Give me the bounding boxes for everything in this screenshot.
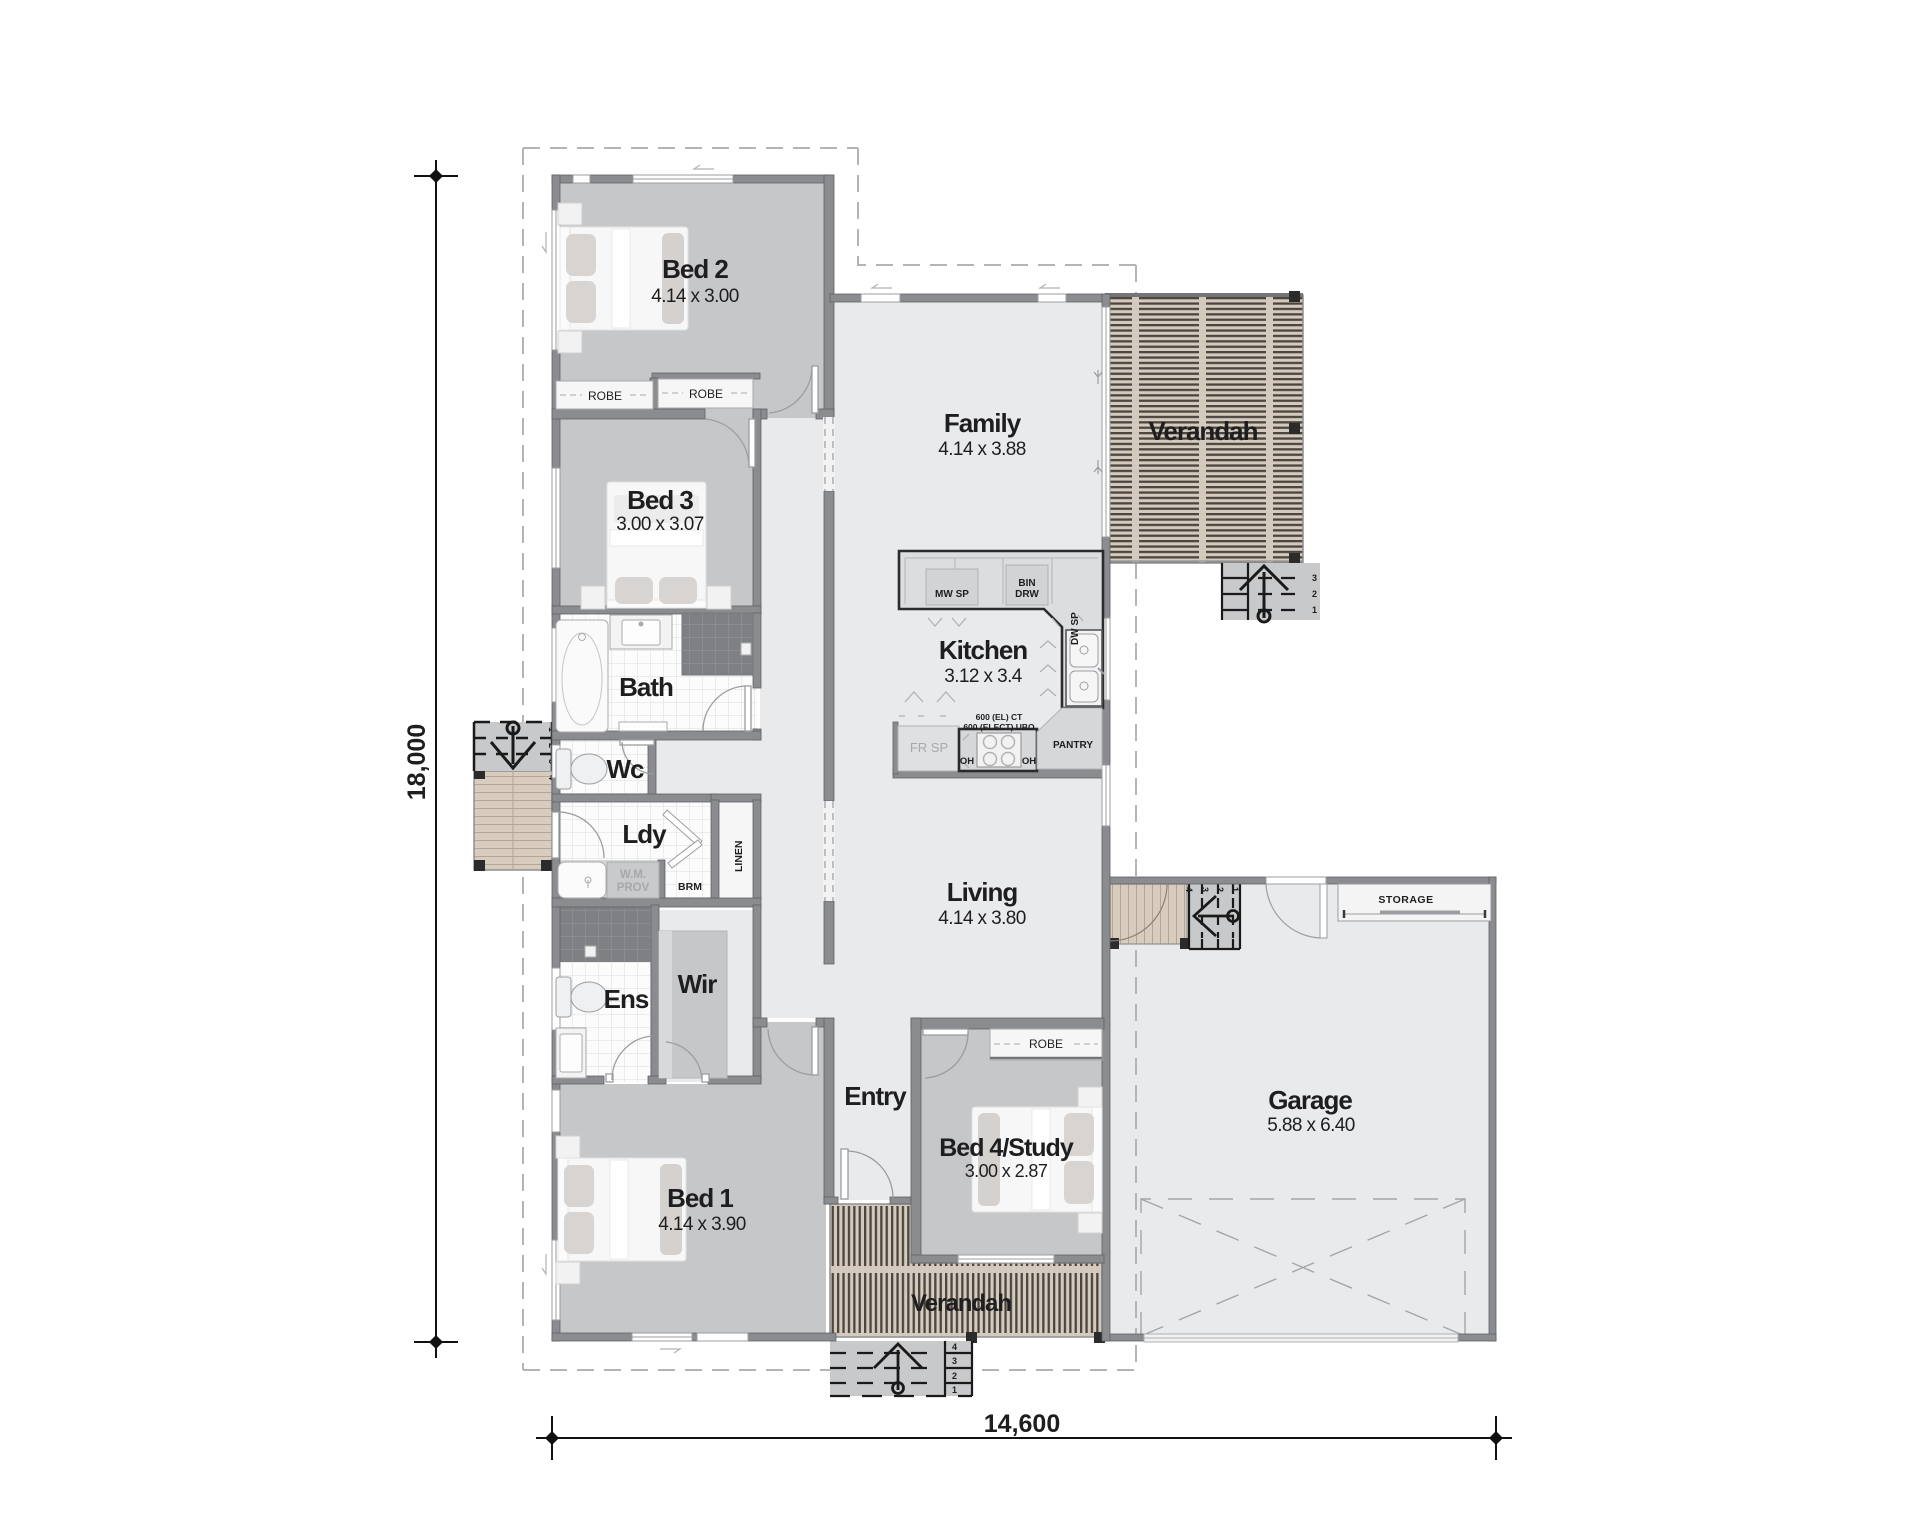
svg-text:Kitchen: Kitchen — [939, 635, 1027, 665]
svg-text:Ens: Ens — [604, 984, 649, 1014]
svg-text:Verandah: Verandah — [1148, 416, 1257, 446]
svg-text:ROBE: ROBE — [689, 387, 723, 401]
svg-text:Verandah: Verandah — [911, 1290, 1011, 1317]
svg-text:FR SP: FR SP — [910, 740, 948, 755]
svg-text:3: 3 — [1312, 573, 1317, 583]
svg-text:ROBE: ROBE — [588, 389, 622, 403]
svg-text:Bed 2: Bed 2 — [662, 254, 728, 284]
svg-text:DW SP: DW SP — [1070, 612, 1081, 645]
svg-text:LINEN: LINEN — [733, 841, 745, 873]
svg-text:14,600: 14,600 — [984, 1410, 1060, 1438]
svg-text:Bed 1: Bed 1 — [667, 1183, 733, 1213]
svg-text:OH: OH — [1022, 756, 1036, 767]
svg-text:BIN: BIN — [1018, 578, 1035, 589]
svg-text:4.14 x 3.88: 4.14 x 3.88 — [938, 439, 1025, 460]
svg-text:Bed 4/Study: Bed 4/Study — [939, 1134, 1074, 1162]
svg-text:OH: OH — [960, 756, 974, 767]
svg-text:2: 2 — [1312, 589, 1317, 599]
svg-text:Bath: Bath — [619, 672, 673, 702]
svg-text:3: 3 — [952, 1356, 957, 1366]
svg-text:Living: Living — [947, 877, 1018, 907]
svg-text:4.14 x 3.80: 4.14 x 3.80 — [938, 908, 1025, 929]
svg-text:Bed 3: Bed 3 — [627, 485, 693, 515]
svg-text:1: 1 — [952, 1385, 957, 1395]
svg-text:5.88 x 6.40: 5.88 x 6.40 — [1267, 1115, 1354, 1136]
svg-text:Entry: Entry — [844, 1081, 907, 1111]
svg-text:4: 4 — [952, 1342, 957, 1352]
svg-text:1: 1 — [1230, 887, 1240, 892]
svg-text:3: 3 — [1200, 887, 1210, 892]
svg-text:ROBE: ROBE — [1029, 1037, 1063, 1051]
svg-text:Family: Family — [944, 408, 1022, 438]
svg-text:2: 2 — [1215, 887, 1225, 892]
svg-text:MW SP: MW SP — [935, 589, 969, 600]
svg-text:PROV: PROV — [617, 882, 650, 894]
svg-text:3.12 x 3.4: 3.12 x 3.4 — [944, 666, 1022, 687]
svg-text:4.14 x 3.90: 4.14 x 3.90 — [658, 1214, 745, 1235]
svg-text:2: 2 — [952, 1371, 957, 1381]
svg-text:3.00 x 2.87: 3.00 x 2.87 — [965, 1161, 1048, 1181]
svg-text:BRM: BRM — [678, 881, 702, 893]
svg-text:W.M.: W.M. — [620, 869, 646, 881]
svg-text:Ldy: Ldy — [622, 819, 667, 849]
svg-text:DRW: DRW — [1015, 589, 1039, 600]
svg-text:18,000: 18,000 — [403, 724, 431, 800]
svg-text:3.00 x 3.07: 3.00 x 3.07 — [616, 514, 703, 535]
svg-text:600 (EL) CT: 600 (EL) CT — [976, 712, 1024, 722]
svg-text:PANTRY: PANTRY — [1053, 740, 1093, 751]
svg-text:Wc: Wc — [607, 754, 645, 784]
svg-text:Garage: Garage — [1268, 1085, 1352, 1115]
svg-text:4.14 x 3.00: 4.14 x 3.00 — [651, 286, 738, 307]
svg-text:STORAGE: STORAGE — [1378, 894, 1433, 906]
svg-text:Wir: Wir — [678, 969, 718, 999]
svg-text:600 (ELECT) UBO: 600 (ELECT) UBO — [963, 722, 1035, 732]
svg-text:4: 4 — [1184, 887, 1194, 892]
svg-text:1: 1 — [1312, 605, 1317, 615]
